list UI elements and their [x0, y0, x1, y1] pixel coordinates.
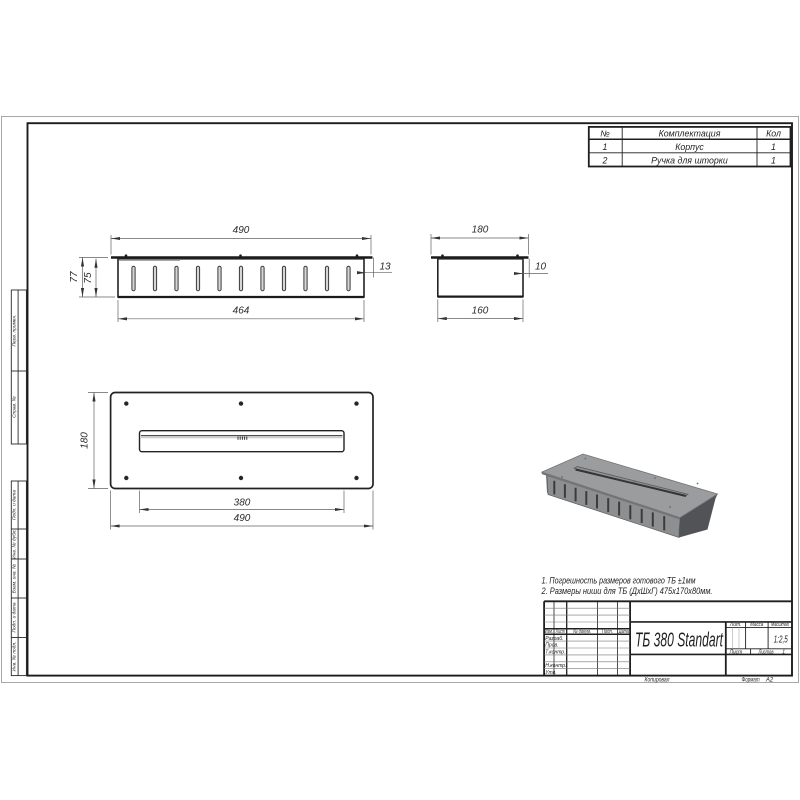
svg-text:Подп. и дата: Подп. и дата	[12, 602, 18, 632]
svg-text:№: №	[600, 128, 610, 138]
svg-text:Справ. №: Справ. №	[12, 396, 18, 418]
svg-text:1: 1	[782, 649, 785, 655]
svg-text:Н.контр.: Н.контр.	[545, 663, 566, 669]
svg-text:490: 490	[233, 225, 250, 236]
svg-text:490: 490	[234, 513, 251, 524]
svg-text:Листов: Листов	[758, 649, 774, 655]
svg-text:Инв. № дубл.: Инв. № дубл.	[12, 529, 18, 559]
svg-text:1: 1	[771, 155, 776, 165]
svg-text:Масштаб: Масштаб	[771, 622, 789, 628]
svg-text:Перв. примен.: Перв. примен.	[12, 315, 18, 347]
svg-text:Изм.: Изм.	[545, 629, 553, 635]
svg-text:75: 75	[83, 272, 94, 284]
svg-text:Лит.: Лит.	[729, 622, 742, 628]
svg-text:380: 380	[234, 498, 251, 509]
svg-text:1: 1	[603, 142, 608, 152]
svg-text:Лист: Лист	[555, 629, 565, 635]
svg-text:Ручка для шторки: Ручка для шторки	[651, 155, 728, 165]
svg-text:180: 180	[80, 432, 91, 449]
svg-text:Взам. инв. №: Взам. инв. №	[12, 564, 18, 594]
svg-text:Утв.: Утв.	[545, 670, 556, 676]
svg-text:160: 160	[472, 305, 489, 316]
svg-text:13: 13	[379, 262, 391, 273]
svg-text:Дата: Дата	[618, 629, 629, 635]
svg-text:Подп.: Подп.	[602, 629, 613, 635]
svg-text:Пров.: Пров.	[545, 643, 558, 649]
svg-text:Инв. № подл.: Инв. № подл.	[12, 642, 18, 672]
svg-text:1: 1	[771, 142, 776, 152]
svg-text:Подп. и дата: Подп. и дата	[12, 490, 18, 520]
svg-text:180: 180	[472, 225, 489, 236]
svg-text:2. Размеры ниши для ТБ (ДхШхГ): 2. Размеры ниши для ТБ (ДхШхГ) 475х170х8…	[541, 586, 713, 596]
svg-text:Кол: Кол	[766, 128, 781, 138]
svg-text:Масса: Масса	[750, 622, 763, 628]
svg-text:Т.контр.: Т.контр.	[545, 650, 565, 656]
svg-text:№ докум.: № докум.	[573, 629, 591, 635]
svg-text:1:2,5: 1:2,5	[774, 635, 788, 646]
svg-text:Корпус: Корпус	[675, 142, 704, 152]
svg-text:Разраб.: Разраб.	[545, 636, 563, 642]
svg-text:Лист: Лист	[728, 649, 742, 655]
svg-text:2: 2	[602, 155, 608, 165]
svg-text:10: 10	[535, 262, 547, 273]
svg-text:ТБ 380 Standart: ТБ 380 Standart	[635, 630, 724, 652]
svg-text:77: 77	[69, 271, 80, 283]
svg-text:Комплектация: Комплектация	[659, 128, 721, 138]
svg-text:Формат: Формат	[742, 678, 760, 684]
svg-text:Копировал: Копировал	[645, 678, 671, 684]
svg-text:А2: А2	[765, 678, 774, 684]
svg-text:464: 464	[233, 306, 250, 317]
svg-text:1. Погрешность размеров готово: 1. Погрешность размеров готового ТБ ±1мм	[542, 576, 696, 586]
